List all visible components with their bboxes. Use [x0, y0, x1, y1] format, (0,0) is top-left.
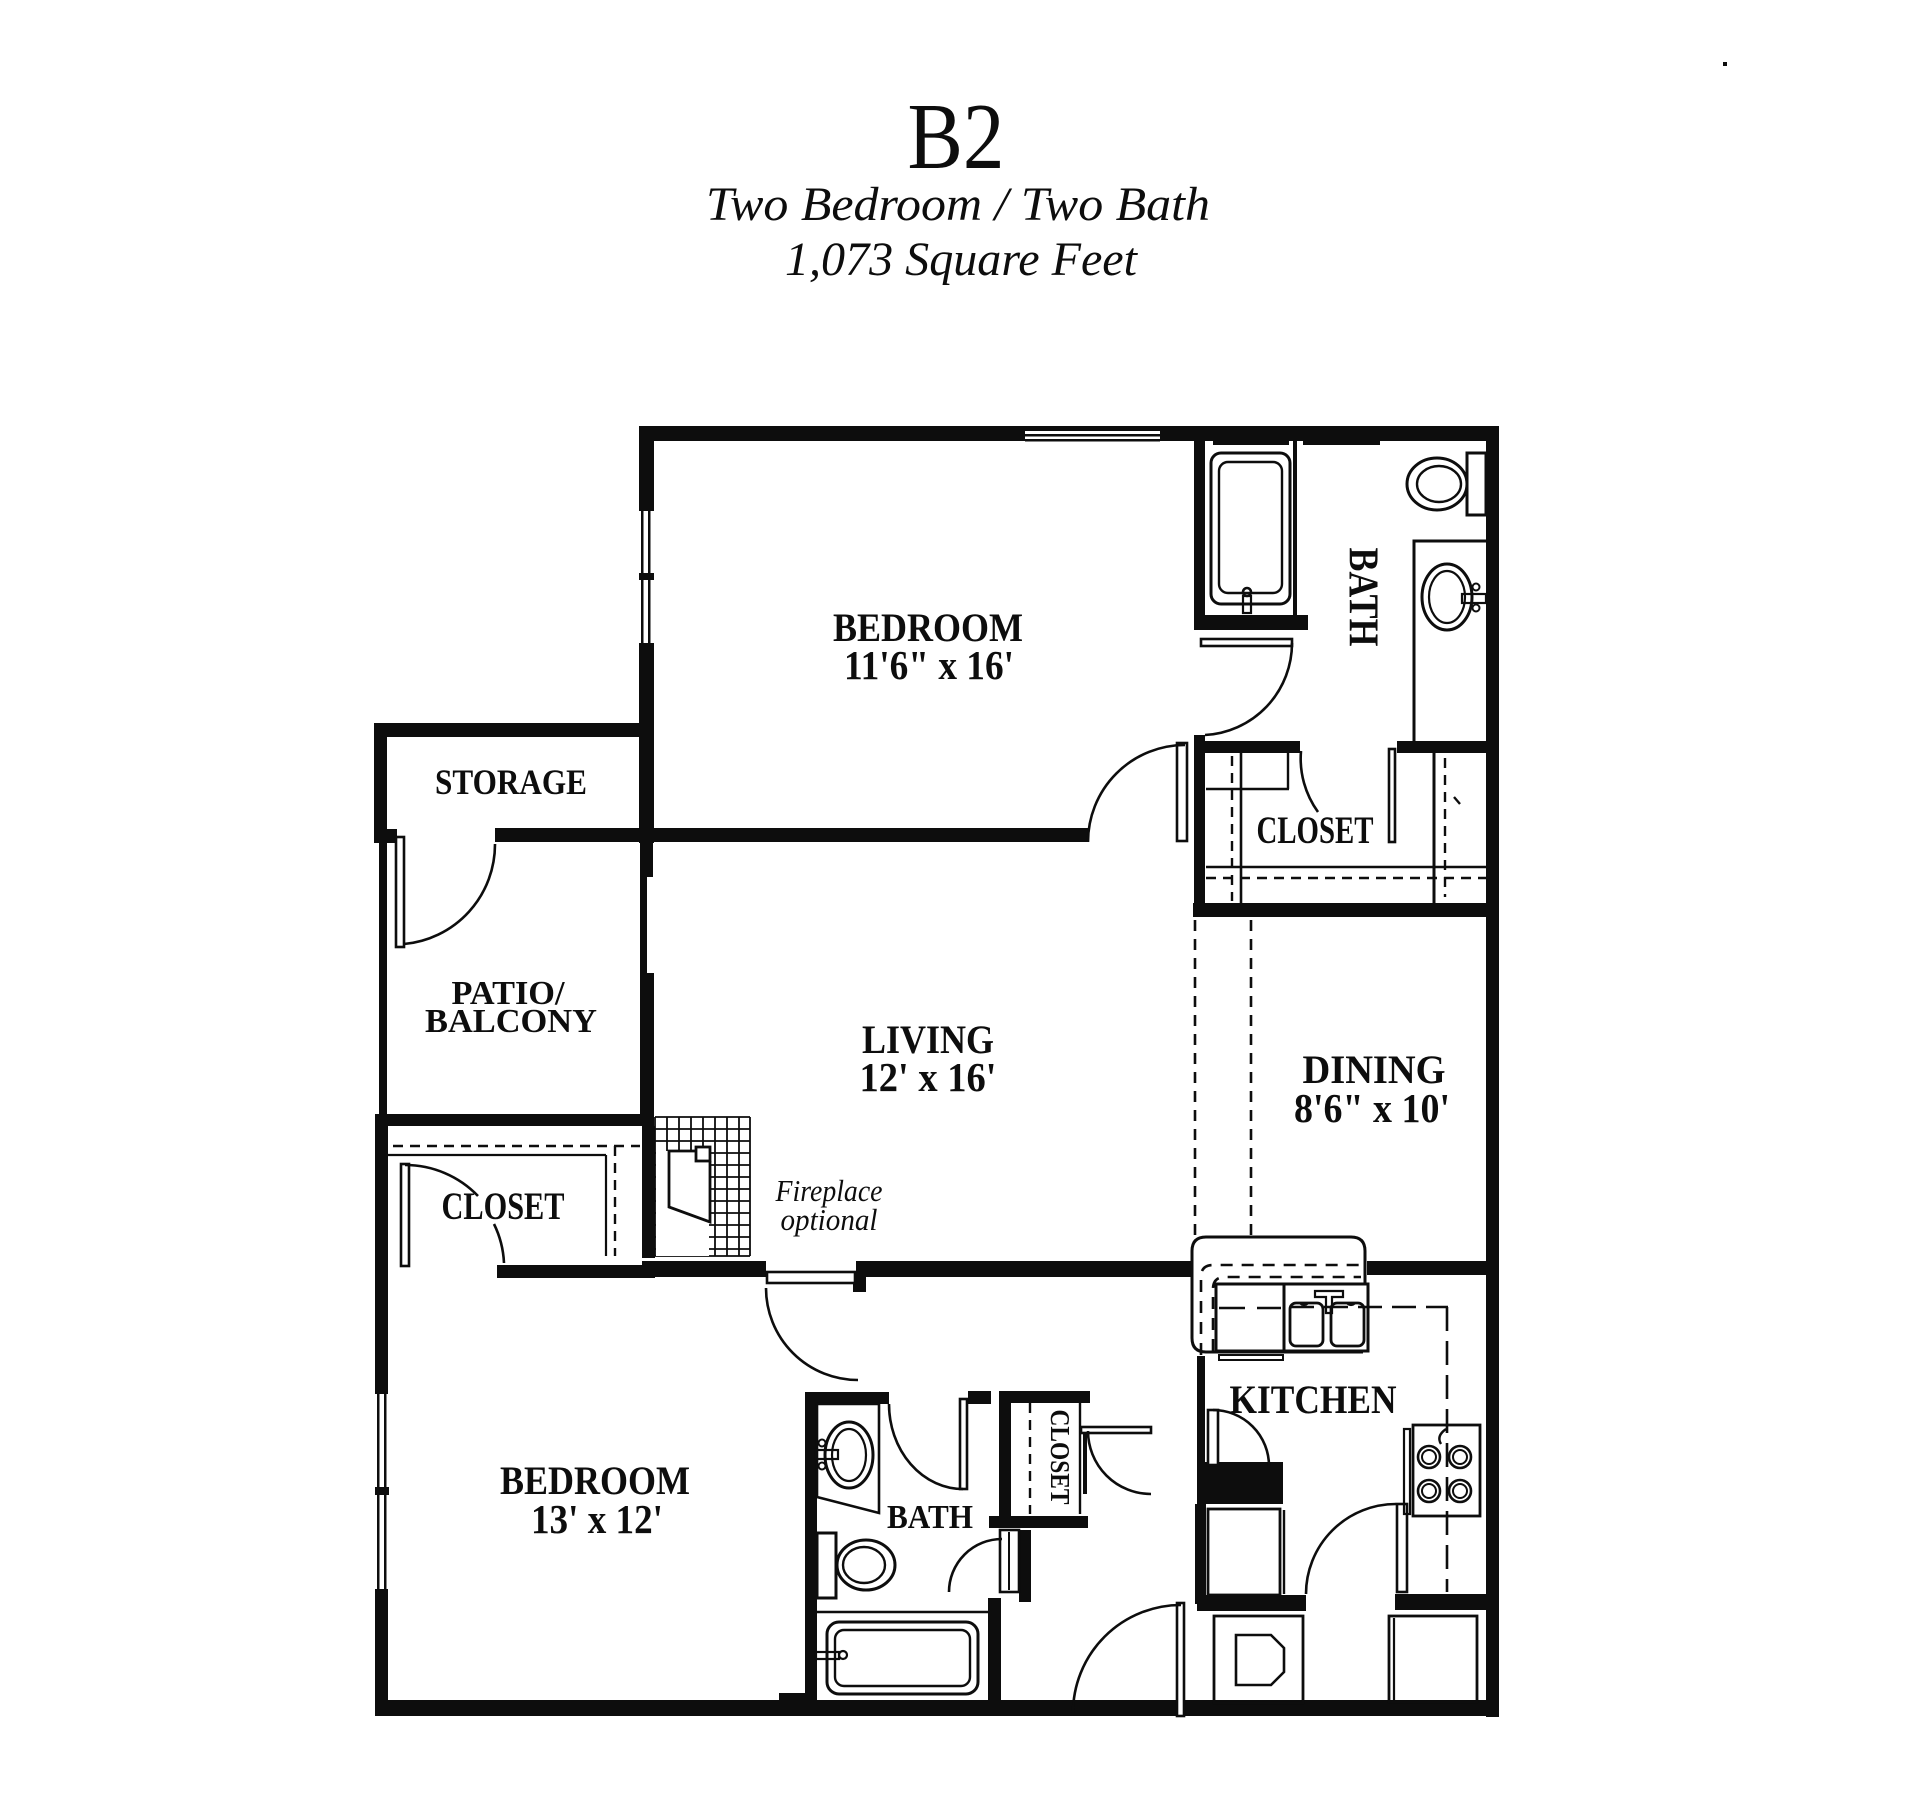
svg-text:Two Bedroom / Two Bath: Two Bedroom / Two Bath: [706, 178, 1210, 231]
svg-text:13' x 12': 13' x 12': [531, 1496, 663, 1542]
svg-text:STORAGE: STORAGE: [435, 762, 587, 802]
svg-text:BALCONY: BALCONY: [425, 1003, 597, 1040]
svg-text:11'6" x 16': 11'6" x 16': [844, 642, 1014, 688]
svg-text:1,073 Square Feet: 1,073 Square Feet: [785, 233, 1139, 286]
svg-text:BATH: BATH: [887, 1499, 973, 1536]
svg-text:8'6" x 10': 8'6" x 10': [1294, 1085, 1450, 1131]
svg-text:CLOSET: CLOSET: [1257, 809, 1374, 852]
svg-text:12' x 16': 12' x 16': [860, 1054, 997, 1100]
svg-text:CLOSET: CLOSET: [1045, 1410, 1075, 1505]
svg-text:CLOSET: CLOSET: [442, 1185, 565, 1228]
svg-text:KITCHEN: KITCHEN: [1230, 1377, 1397, 1422]
svg-text:optional: optional: [781, 1202, 878, 1237]
svg-text:BATH: BATH: [1339, 548, 1385, 647]
svg-text:B2: B2: [908, 85, 1005, 189]
